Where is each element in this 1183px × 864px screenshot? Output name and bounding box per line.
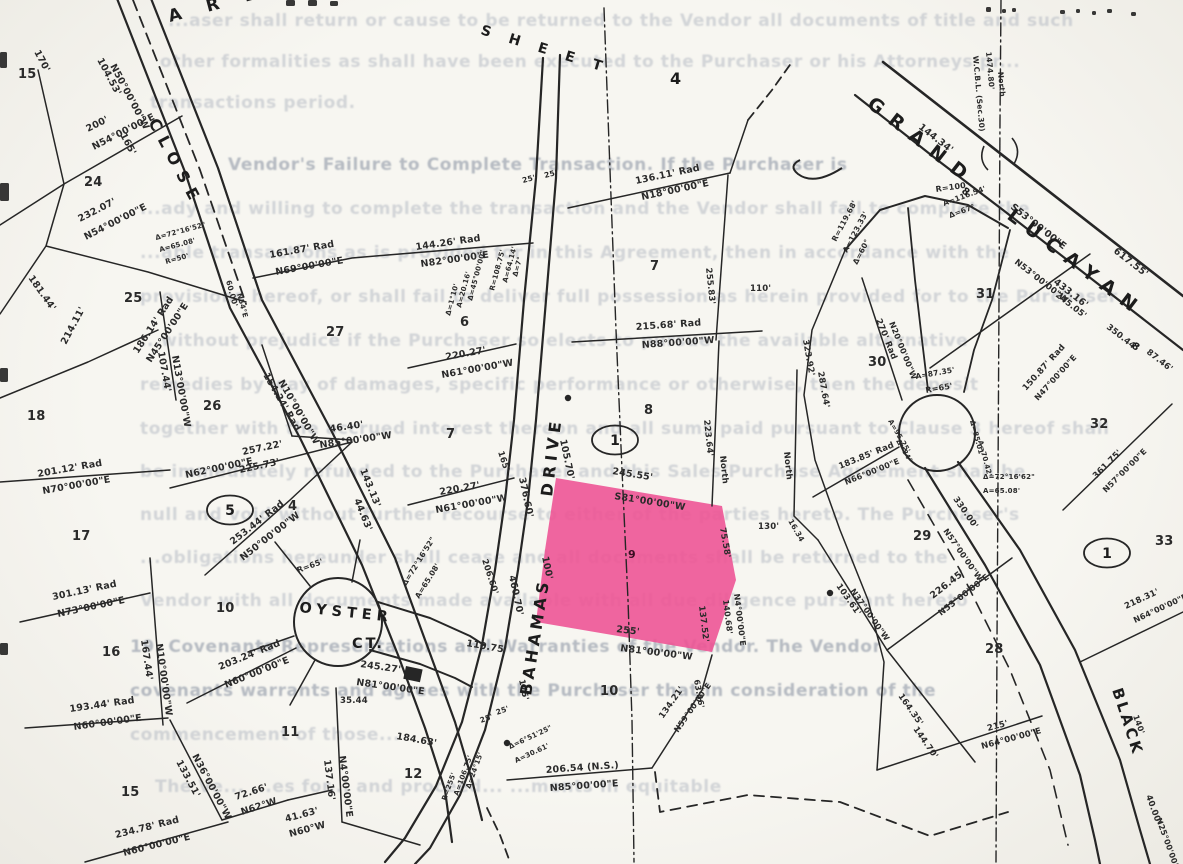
- scan-speck: [286, 0, 295, 6]
- lot-number: 26: [203, 399, 222, 414]
- bearing-label: 35.44: [340, 696, 368, 706]
- scan-speck: [986, 7, 991, 12]
- lot-number: 31: [976, 287, 995, 302]
- lot-number: 29: [913, 529, 932, 544]
- road-edge-line: [925, 468, 1100, 864]
- bearing-label: 184.63': [395, 731, 437, 749]
- scanned-plat-document: ...aser shall return or cause to be retu…: [0, 0, 1183, 864]
- bleed-text-line: transactions period.: [150, 93, 356, 113]
- bleed-text-line: commencement of those...: [130, 725, 400, 745]
- bearing-label: 144.70': [911, 725, 940, 761]
- crossing-tick-right: [1012, 138, 1018, 164]
- bleed-text-line: ...aser shall return or cause to be retu…: [168, 11, 1074, 31]
- bleed-text-line: together with the accrued interest there…: [140, 419, 1110, 439]
- lot-number: 11: [281, 725, 300, 740]
- bearing-label: Δ=72°16'52": [154, 221, 206, 242]
- monument-dot: [827, 590, 833, 596]
- bearing-label: Δ=72°16'62": [983, 473, 1035, 481]
- lot-number: 7: [446, 427, 455, 442]
- lot-number: 32: [1090, 417, 1109, 432]
- bleed-text-line: ...without prejudice if the Purchaser so…: [140, 331, 968, 351]
- dashed-boundary-line: [908, 480, 1068, 845]
- block-number-marker: 1: [1084, 539, 1130, 568]
- lot-number: 18: [27, 409, 46, 424]
- bearing-label: 87.46': [1144, 347, 1174, 374]
- bearing-label: 110': [750, 284, 771, 294]
- plat-map-drawing: ...aser shall return or cause to be retu…: [0, 0, 1183, 864]
- street-name-close: CLOSE: [144, 115, 207, 210]
- bearing-label: 214.11': [59, 305, 88, 346]
- lot-number: 7: [650, 259, 659, 274]
- sheet-number: 4: [670, 69, 681, 88]
- lot-boundary-line: [0, 330, 158, 398]
- lot-number: 24: [84, 175, 103, 190]
- bearing-label: 181.44': [26, 273, 59, 313]
- bearing-label: 245.27': [360, 659, 402, 676]
- lot-number: 10: [600, 684, 619, 699]
- bearing-label: 130': [758, 522, 779, 532]
- lot-number: 12: [404, 767, 423, 782]
- scan-speck: [308, 0, 317, 6]
- monument-dot: [504, 740, 510, 746]
- scan-speck: [1076, 9, 1080, 13]
- street-name-oyster-ct: CT.: [352, 636, 385, 652]
- scan-speck: [1131, 12, 1136, 16]
- monument-dot: [565, 395, 571, 401]
- lot-number: 28: [985, 642, 1004, 657]
- bearing-label: 257.22': [241, 439, 283, 458]
- scan-speck: [0, 368, 8, 382]
- lot-number: 4: [288, 499, 297, 514]
- lot-number: 15: [18, 67, 37, 82]
- bearing-label: 220.27': [439, 480, 481, 498]
- bearing-label: 215': [986, 719, 1009, 734]
- scan-speck: [0, 643, 8, 655]
- scan-speck: [1107, 9, 1112, 13]
- bearing-label: 165': [117, 131, 138, 157]
- dashed-boundary-line: [487, 808, 510, 862]
- bleed-text-line: ...ady and willing to complete the trans…: [140, 199, 1030, 219]
- bearing-label: North: [996, 71, 1007, 97]
- lot-number: 8: [644, 403, 653, 418]
- scan-speck: [0, 183, 9, 201]
- lot-number: 33: [1155, 534, 1174, 549]
- lot-number: 17: [72, 529, 91, 544]
- scan-speck: [1012, 8, 1016, 12]
- scan-speck: [1060, 10, 1065, 14]
- bearing-label: 25': [495, 704, 511, 717]
- lot-number: 6: [460, 315, 469, 330]
- bearing-label: N25°00'00"W: [1154, 817, 1183, 864]
- bearing-label: 617.55': [1111, 246, 1150, 280]
- block-number-text: 1: [610, 433, 620, 449]
- lot-number: 27: [326, 325, 345, 340]
- lot-number: 16: [102, 645, 121, 660]
- lot-boundary-line: [0, 184, 64, 314]
- parcel-lot-number: 9: [628, 548, 636, 561]
- bearing-label: A=65.08': [983, 487, 1020, 495]
- scan-speck: [0, 52, 7, 68]
- street-name-grand: GRAND: [863, 93, 980, 191]
- bearing-label: 1474.80': [984, 51, 996, 90]
- scan-speck: [1002, 9, 1006, 13]
- crossing-tick-left: [982, 146, 988, 170]
- block-number-text: 1: [1102, 546, 1112, 562]
- scan-speck: [1092, 11, 1096, 15]
- bearing-label: 193.44' Rad: [69, 695, 136, 715]
- lot-number: 15: [121, 785, 140, 800]
- block-number-text: 5: [225, 503, 235, 519]
- lot-boundary-line: [877, 716, 1042, 770]
- bearing-label: 25': [479, 712, 495, 725]
- scan-speck: [330, 1, 338, 6]
- lot-boundary-line: [38, 70, 64, 184]
- lot-number: 30: [868, 355, 887, 370]
- lot-number: 10: [216, 601, 235, 616]
- lot-number: 25: [124, 291, 143, 306]
- bleed-text-line: provisions hereof, or shall fail to deli…: [140, 287, 1118, 307]
- bearing-label: 200': [84, 114, 110, 134]
- lot-boundary-line: [1080, 612, 1183, 662]
